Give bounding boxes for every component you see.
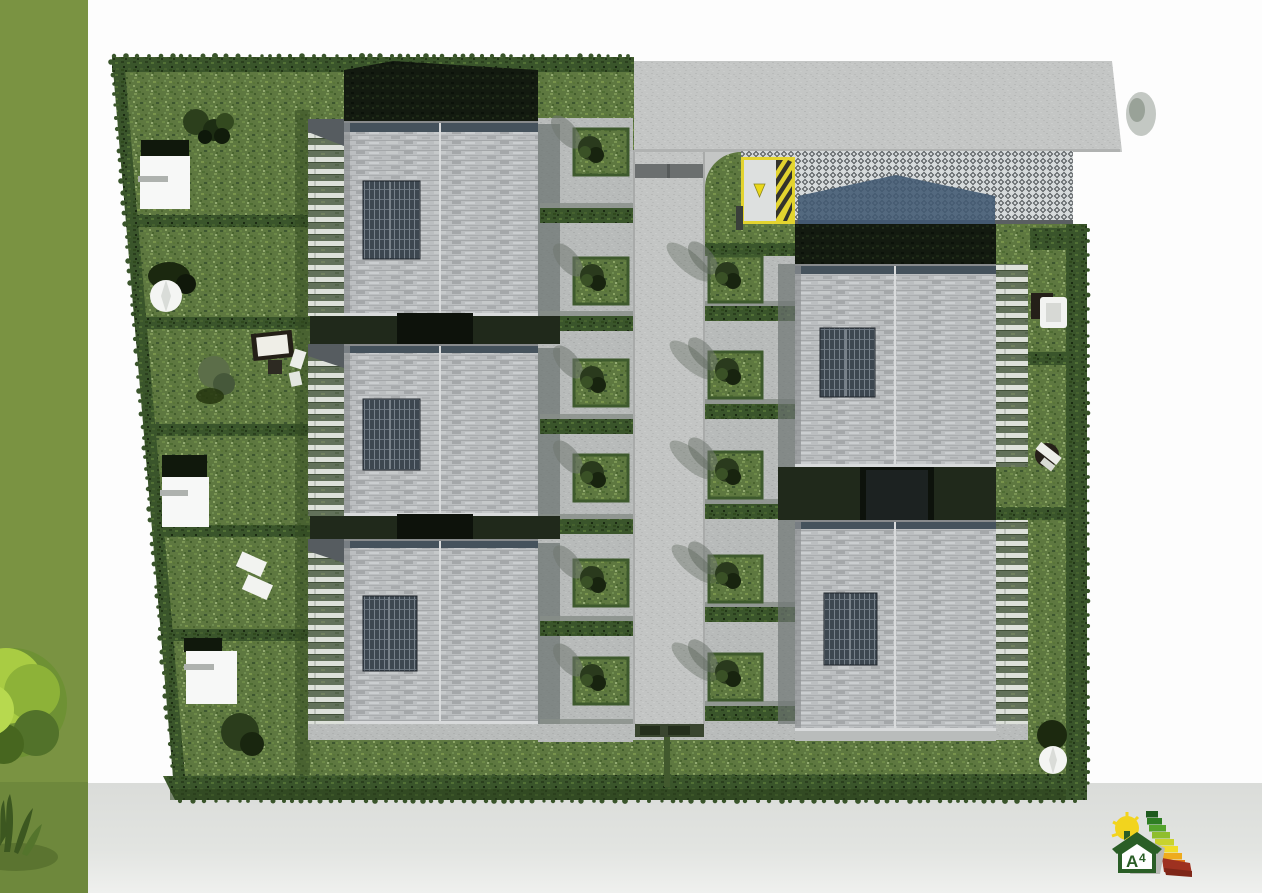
svg-text:4: 4: [1139, 851, 1146, 865]
svg-text:A: A: [1126, 852, 1138, 871]
